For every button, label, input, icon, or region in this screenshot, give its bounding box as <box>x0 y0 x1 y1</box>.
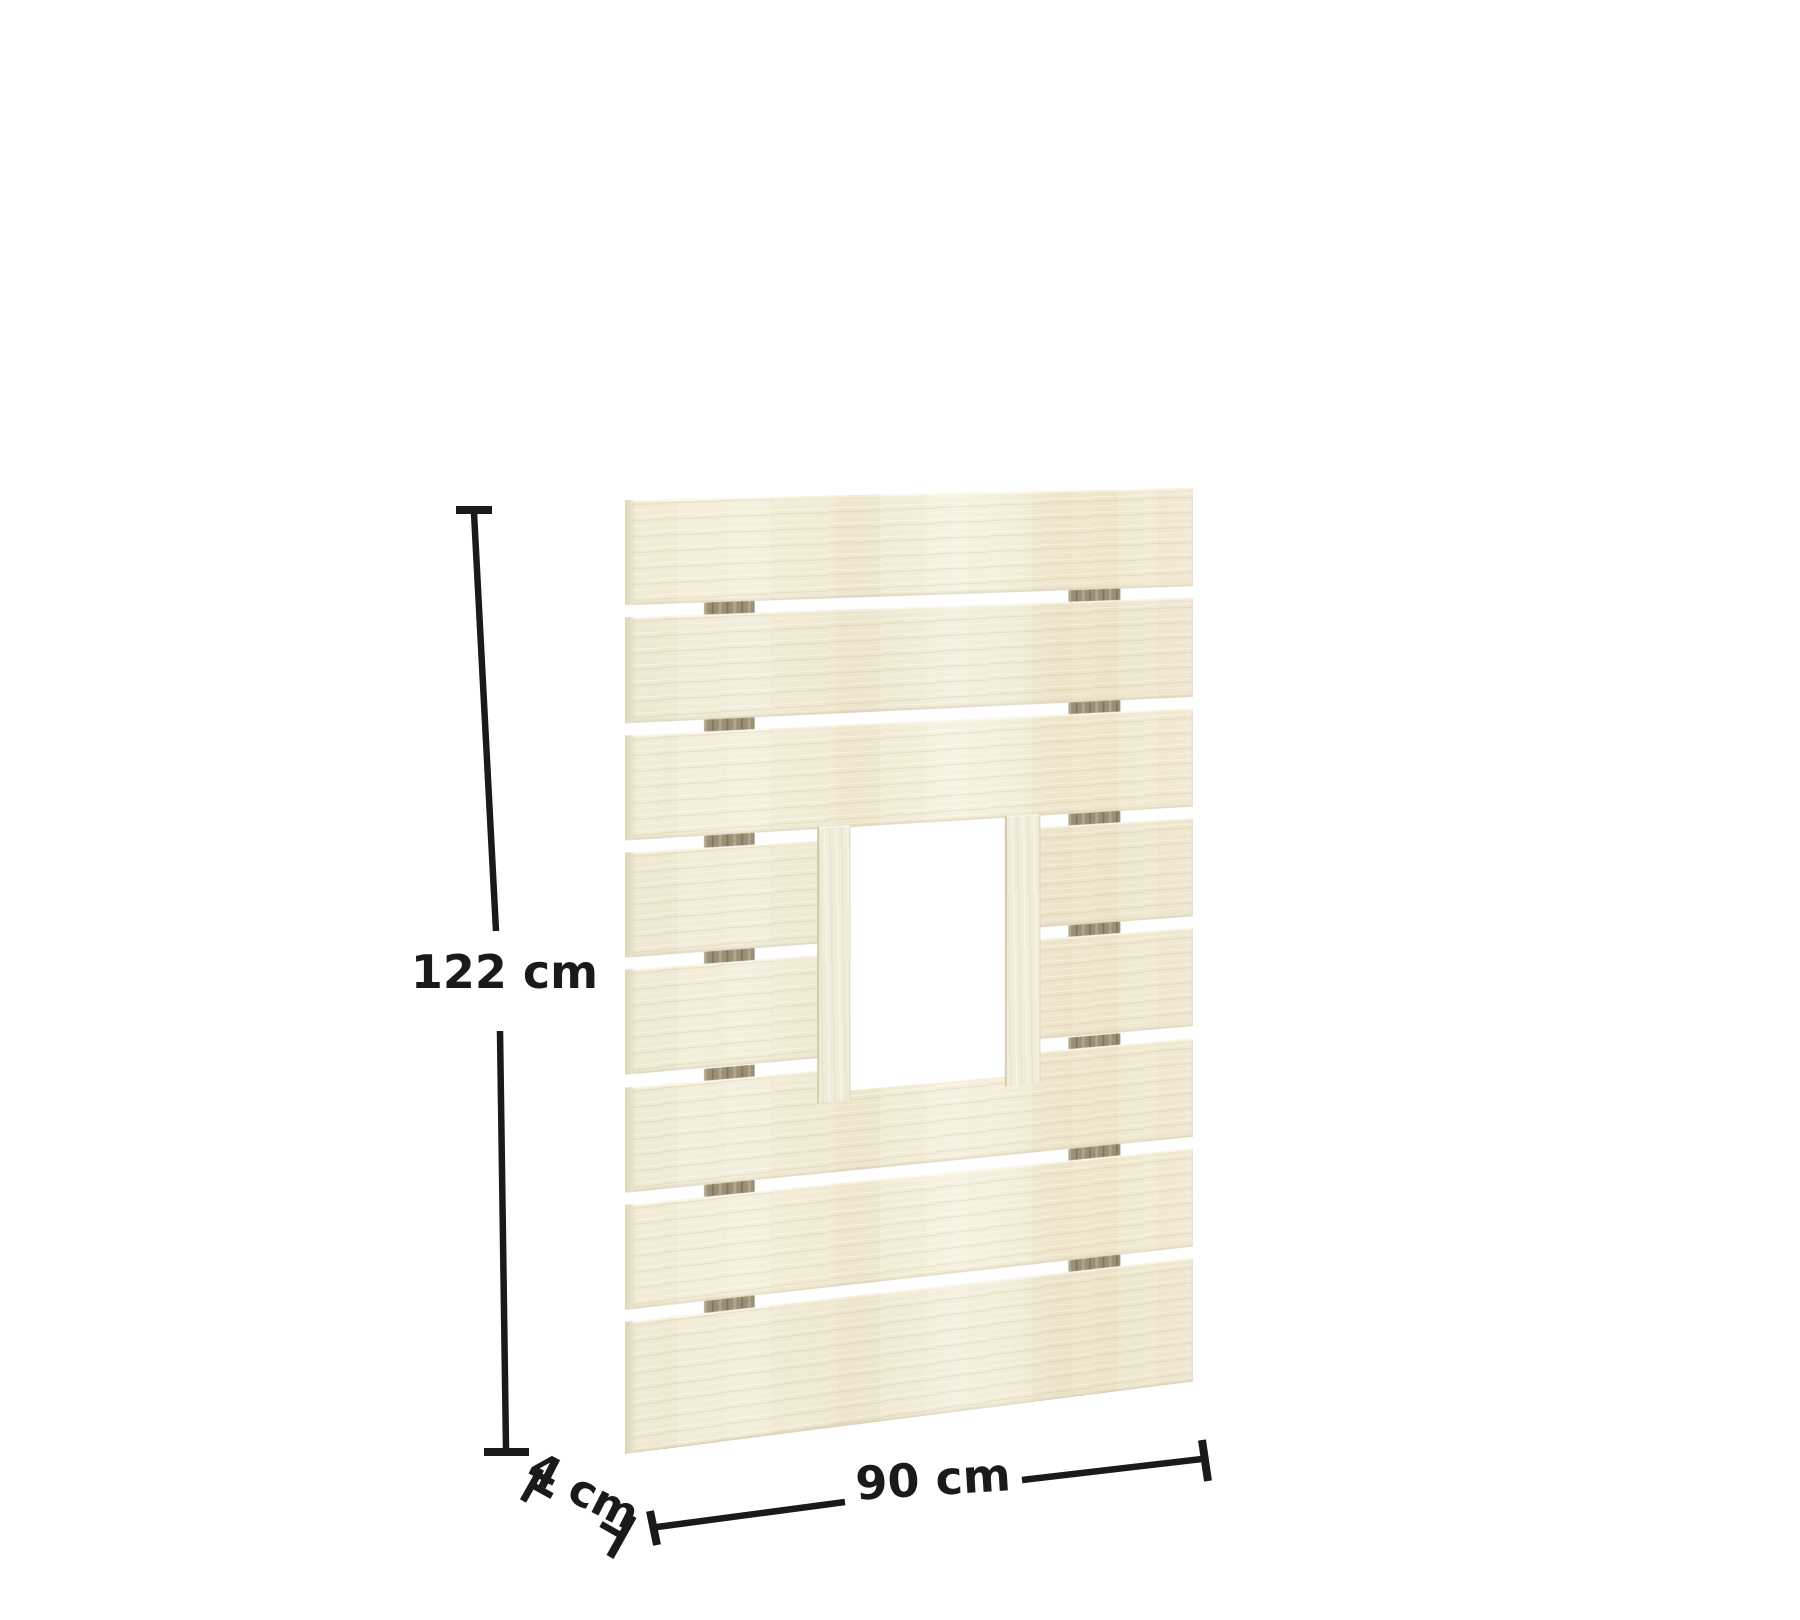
window-opening <box>850 822 1004 1091</box>
width-dimension-line <box>657 1502 845 1527</box>
panel-perspective-wrapper <box>633 500 1233 1453</box>
width-dimension-label: 90 cm <box>827 1450 1039 1509</box>
height-dimension-line <box>474 513 496 931</box>
spacer-batten <box>704 601 755 615</box>
height-dimension-label: 122 cm <box>397 949 612 995</box>
spacer-batten <box>1068 589 1120 602</box>
spacer-batten <box>704 717 755 731</box>
width-dimension-line <box>1022 1459 1202 1480</box>
height-dimension-line <box>500 1031 506 1448</box>
window-jamb-right <box>1005 814 1041 1087</box>
panel-diagram: 122 cm 90 cm 4 cm <box>0 0 1800 1620</box>
slatted-panel <box>633 488 1193 1453</box>
window-jamb-left <box>817 825 850 1103</box>
panel-slat <box>633 488 1193 606</box>
